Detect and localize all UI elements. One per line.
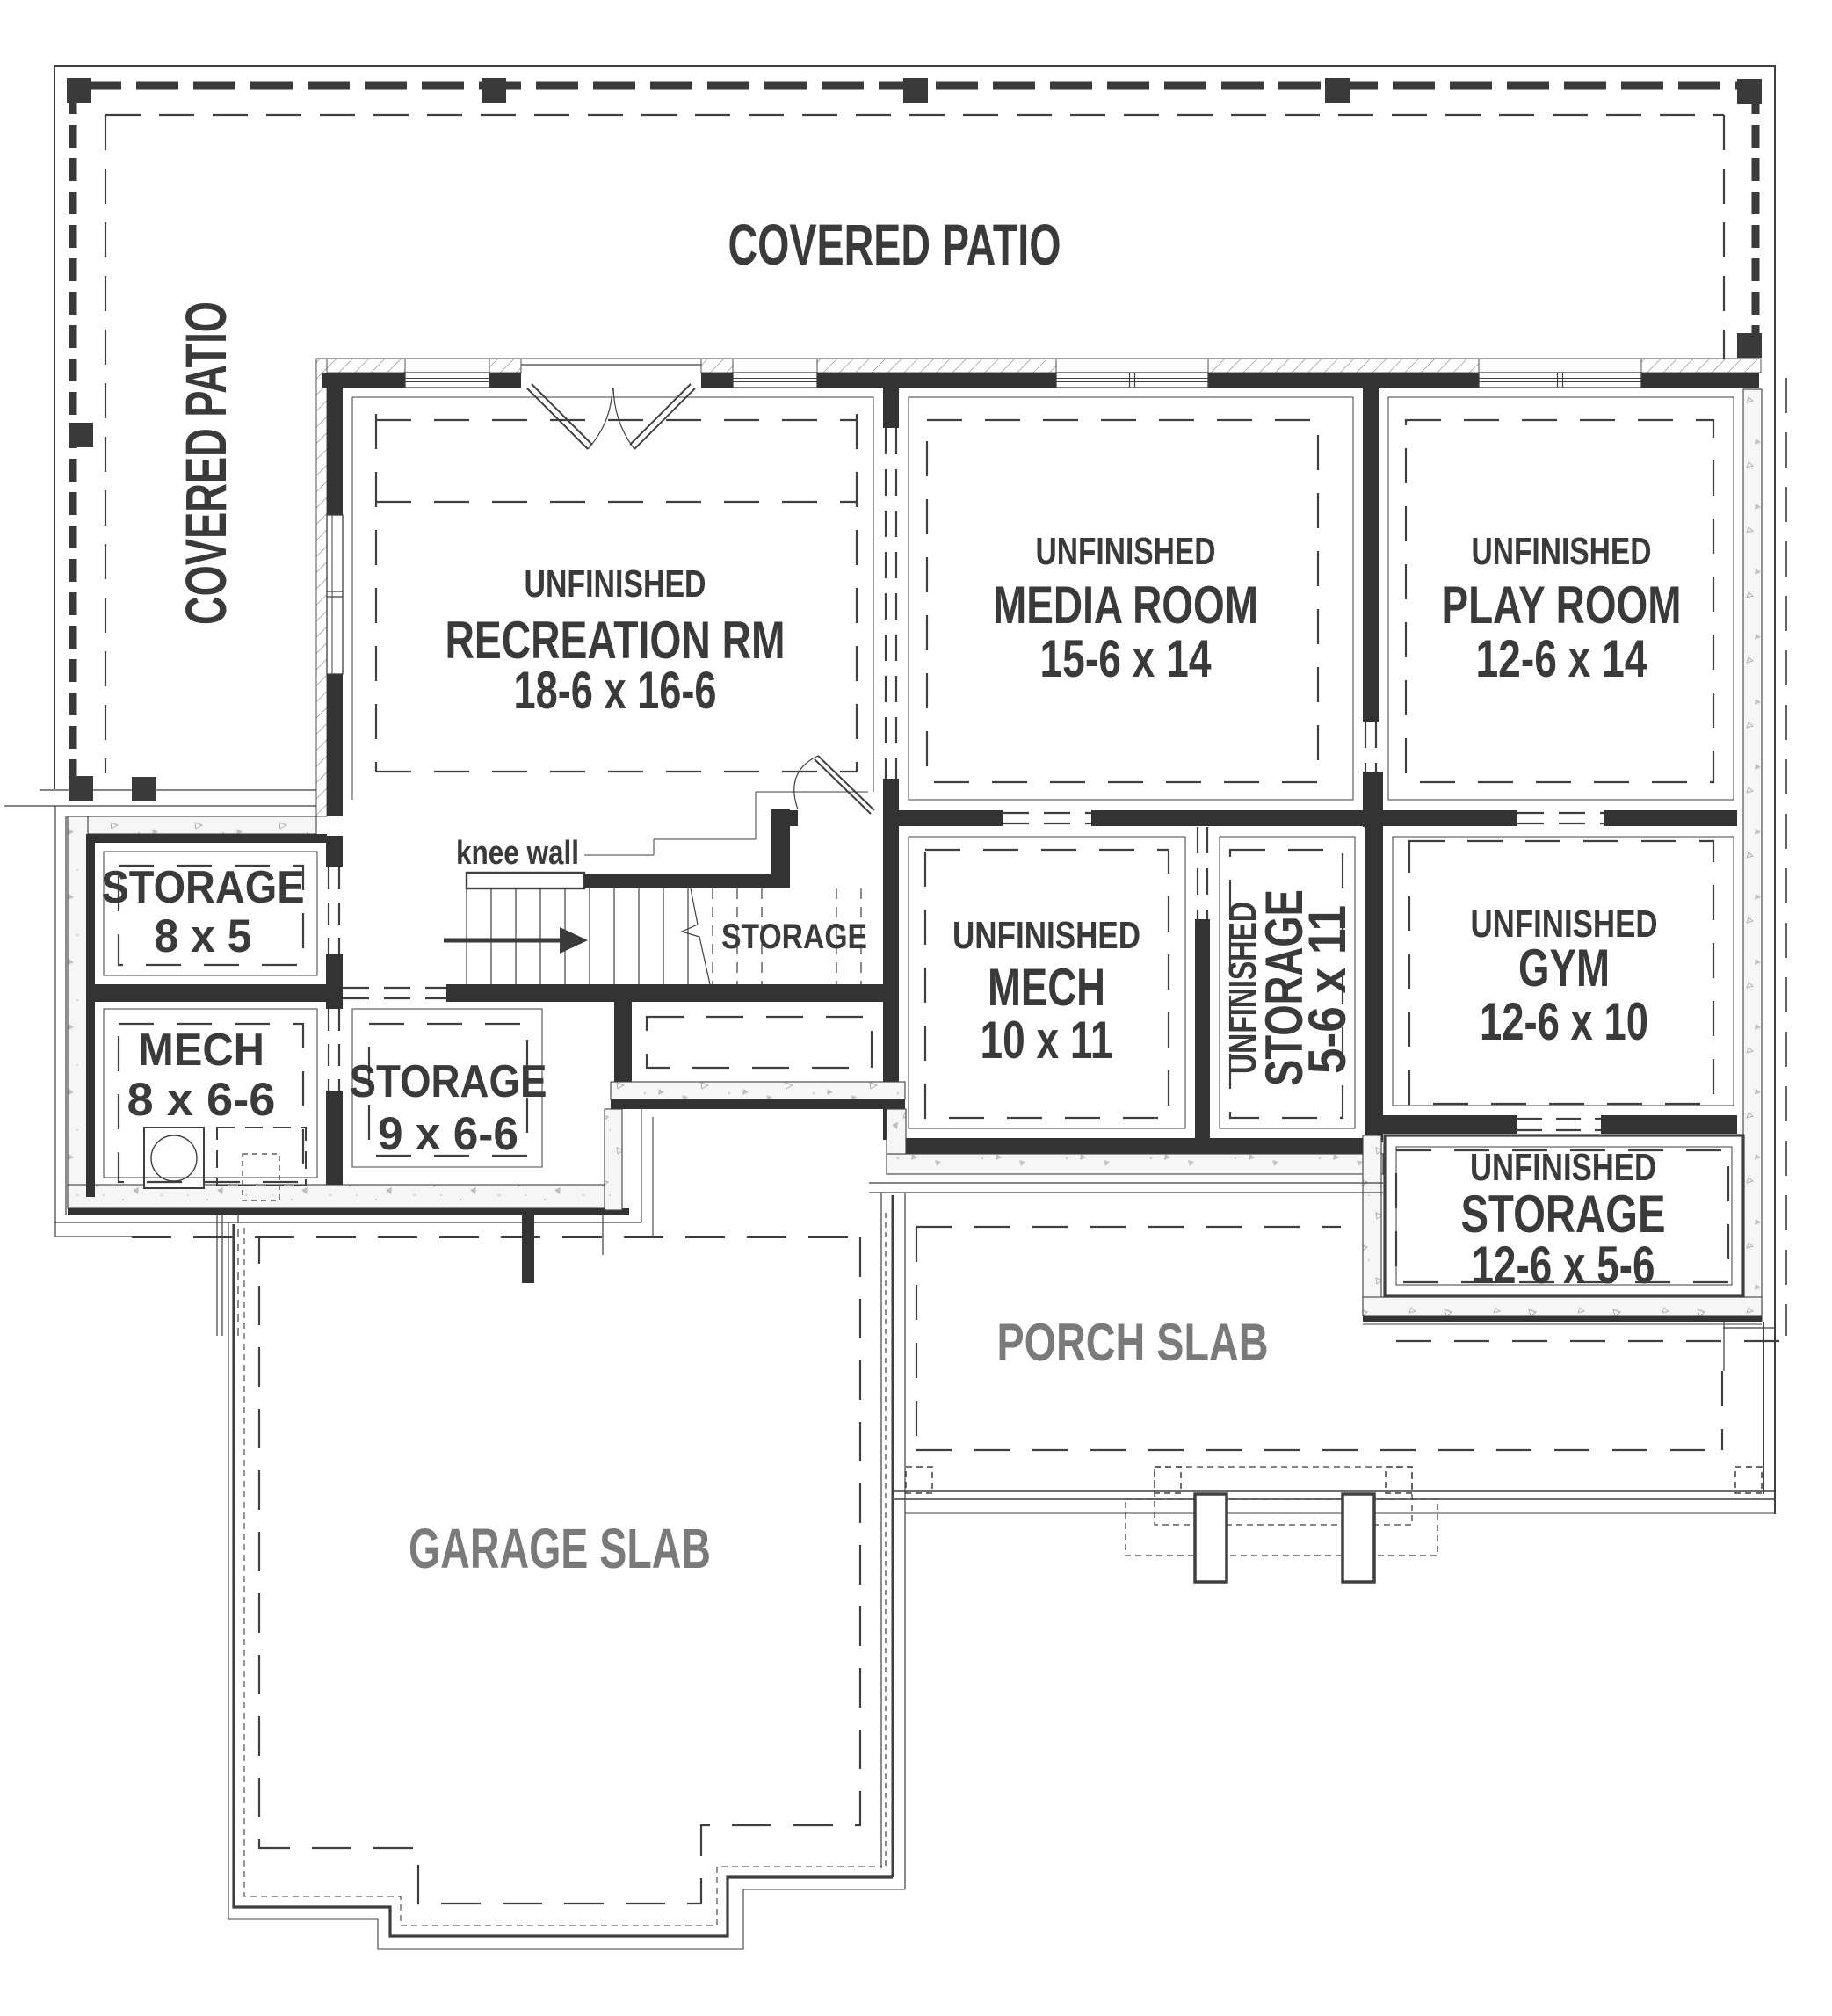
- svg-text:12-6 x 5-6: 12-6 x 5-6: [1472, 1236, 1655, 1294]
- svg-text:PORCH SLAB: PORCH SLAB: [997, 1313, 1269, 1372]
- svg-text:UNFINISHED: UNFINISHED: [525, 562, 706, 606]
- svg-text:MECH: MECH: [988, 958, 1105, 1017]
- svg-text:UNFINISHED: UNFINISHED: [1036, 530, 1216, 573]
- svg-text:8 x 6-6: 8 x 6-6: [127, 1074, 276, 1126]
- svg-text:12-6 x 14: 12-6 x 14: [1476, 629, 1647, 688]
- svg-text:COVERED PATIO: COVERED PATIO: [173, 301, 238, 625]
- svg-text:12-6 x 10: 12-6 x 10: [1480, 992, 1648, 1051]
- svg-text:10 x 11: 10 x 11: [981, 1011, 1113, 1070]
- svg-text:9 x 6-6: 9 x 6-6: [378, 1108, 518, 1160]
- svg-text:UNFINISHED: UNFINISHED: [1470, 1146, 1656, 1189]
- svg-text:8 x 5: 8 x 5: [155, 910, 252, 962]
- svg-text:COVERED PATIO: COVERED PATIO: [728, 212, 1061, 277]
- svg-text:GARAGE SLAB: GARAGE SLAB: [409, 1517, 711, 1580]
- svg-text:GYM: GYM: [1518, 939, 1610, 997]
- svg-text:knee wall: knee wall: [456, 835, 579, 872]
- svg-text:5-6 x 11: 5-6 x 11: [1298, 905, 1357, 1074]
- svg-text:MECH: MECH: [138, 1025, 264, 1076]
- svg-text:STORAGE: STORAGE: [350, 1056, 547, 1107]
- svg-text:PLAY ROOM: PLAY ROOM: [1442, 576, 1682, 635]
- svg-text:18-6 x 16-6: 18-6 x 16-6: [514, 661, 717, 720]
- svg-text:UNFINISHED: UNFINISHED: [952, 914, 1140, 957]
- svg-text:STORAGE: STORAGE: [1461, 1185, 1666, 1244]
- svg-text:MEDIA ROOM: MEDIA ROOM: [993, 576, 1258, 635]
- svg-text:STORAGE: STORAGE: [102, 862, 305, 913]
- svg-text:UNFINISHED: UNFINISHED: [1472, 530, 1652, 573]
- svg-text:STORAGE: STORAGE: [721, 917, 867, 956]
- svg-text:15-6 x 14: 15-6 x 14: [1040, 629, 1212, 688]
